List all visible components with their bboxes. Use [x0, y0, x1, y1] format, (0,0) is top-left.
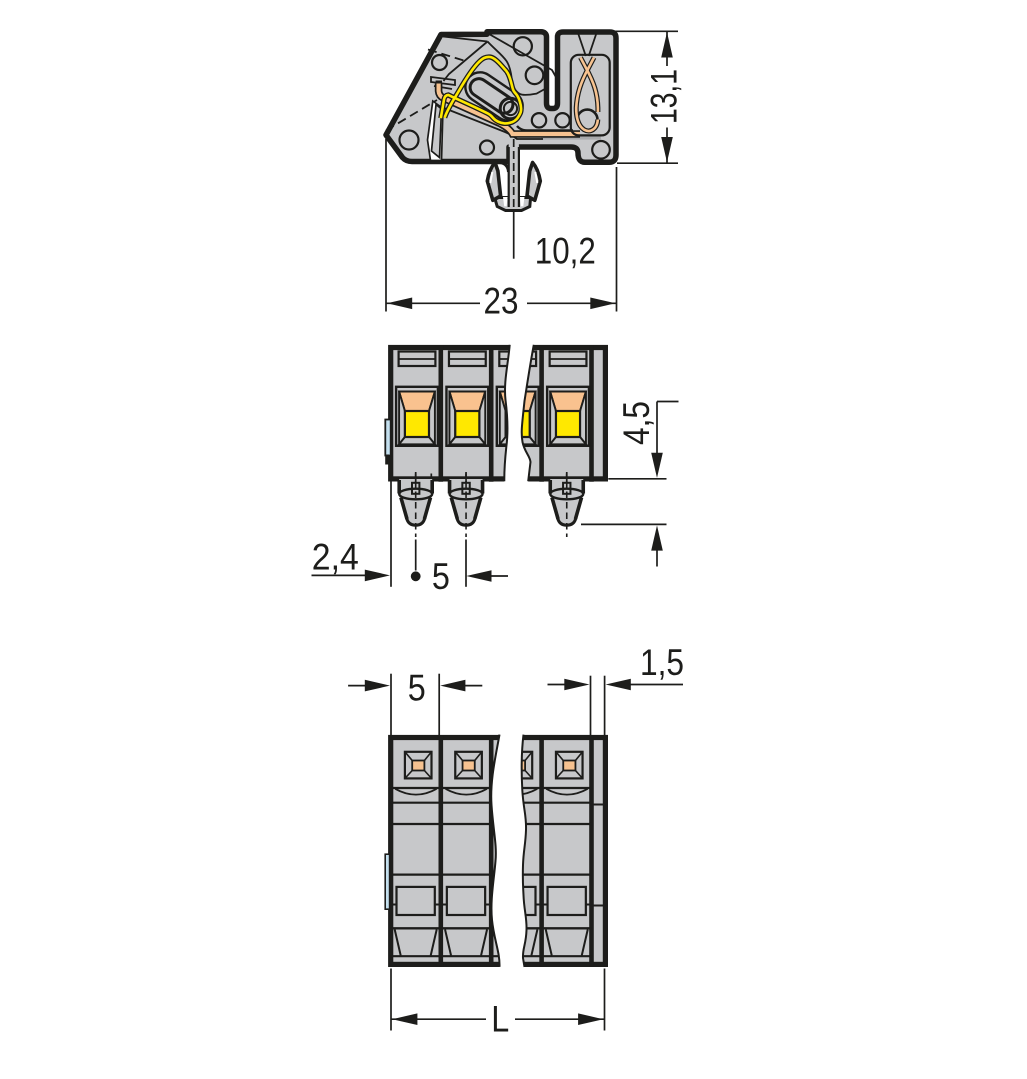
svg-text:4,5: 4,5: [615, 401, 657, 445]
svg-text:L: L: [491, 998, 509, 1040]
svg-text:10,2: 10,2: [535, 230, 596, 272]
svg-text:23: 23: [484, 280, 519, 322]
svg-text:1,5: 1,5: [640, 641, 684, 683]
svg-text:5: 5: [408, 667, 426, 709]
svg-text:13,1: 13,1: [643, 69, 685, 124]
svg-text:2,4: 2,4: [312, 536, 359, 578]
svg-text:5: 5: [432, 555, 450, 597]
